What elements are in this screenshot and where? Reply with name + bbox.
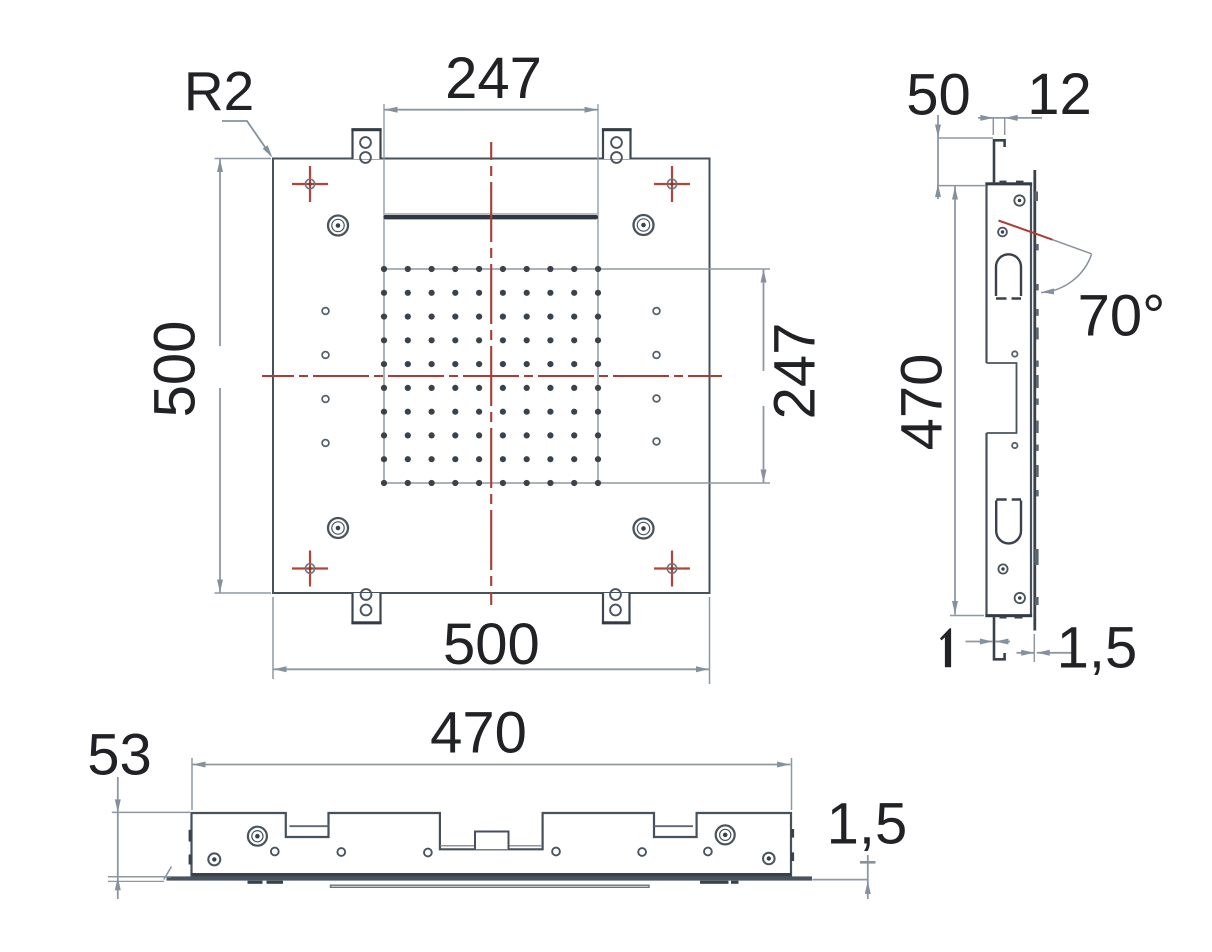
svg-text:1,5: 1,5 <box>1057 616 1138 681</box>
svg-text:470: 470 <box>430 701 527 766</box>
svg-text:1,5: 1,5 <box>827 792 908 857</box>
svg-text:247: 247 <box>445 46 542 111</box>
svg-text:53: 53 <box>87 723 152 788</box>
svg-text:12: 12 <box>1027 62 1092 127</box>
svg-text:70°: 70° <box>1078 284 1166 349</box>
svg-text:247: 247 <box>763 323 828 420</box>
svg-text:500: 500 <box>443 612 540 677</box>
svg-text:50: 50 <box>906 63 971 128</box>
svg-text:R2: R2 <box>184 60 254 122</box>
svg-text:470: 470 <box>890 354 955 451</box>
svg-text:500: 500 <box>143 321 208 418</box>
